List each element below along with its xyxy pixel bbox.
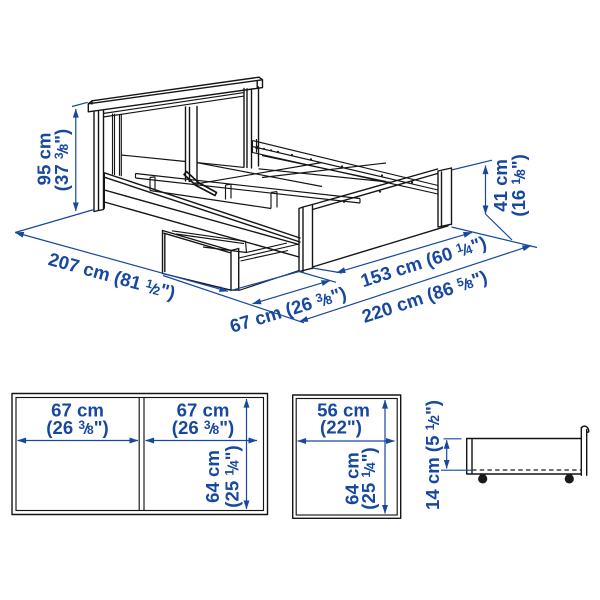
svg-text:(25 1/4"): (25 1/4") [358,447,379,509]
svg-text:14 cm (5 1/2"): 14 cm (5 1/2") [422,400,443,510]
svg-text:67 cm (26 3/8"): 67 cm (26 3/8") [227,282,348,336]
svg-text:207 cm (81 1/2"): 207 cm (81 1/2") [46,248,178,303]
svg-text:(25 1/4"): (25 1/4") [222,445,243,507]
svg-text:(22"): (22") [320,417,362,438]
svg-text:(26 3/8"): (26 3/8") [172,417,234,438]
svg-text:(37 3/8"): (37 3/8") [51,129,72,191]
svg-text:(16 1/8"): (16 1/8") [508,154,529,216]
svg-text:64 cm: 64 cm [202,450,223,503]
svg-text:(26 3/8"): (26 3/8") [46,417,108,438]
